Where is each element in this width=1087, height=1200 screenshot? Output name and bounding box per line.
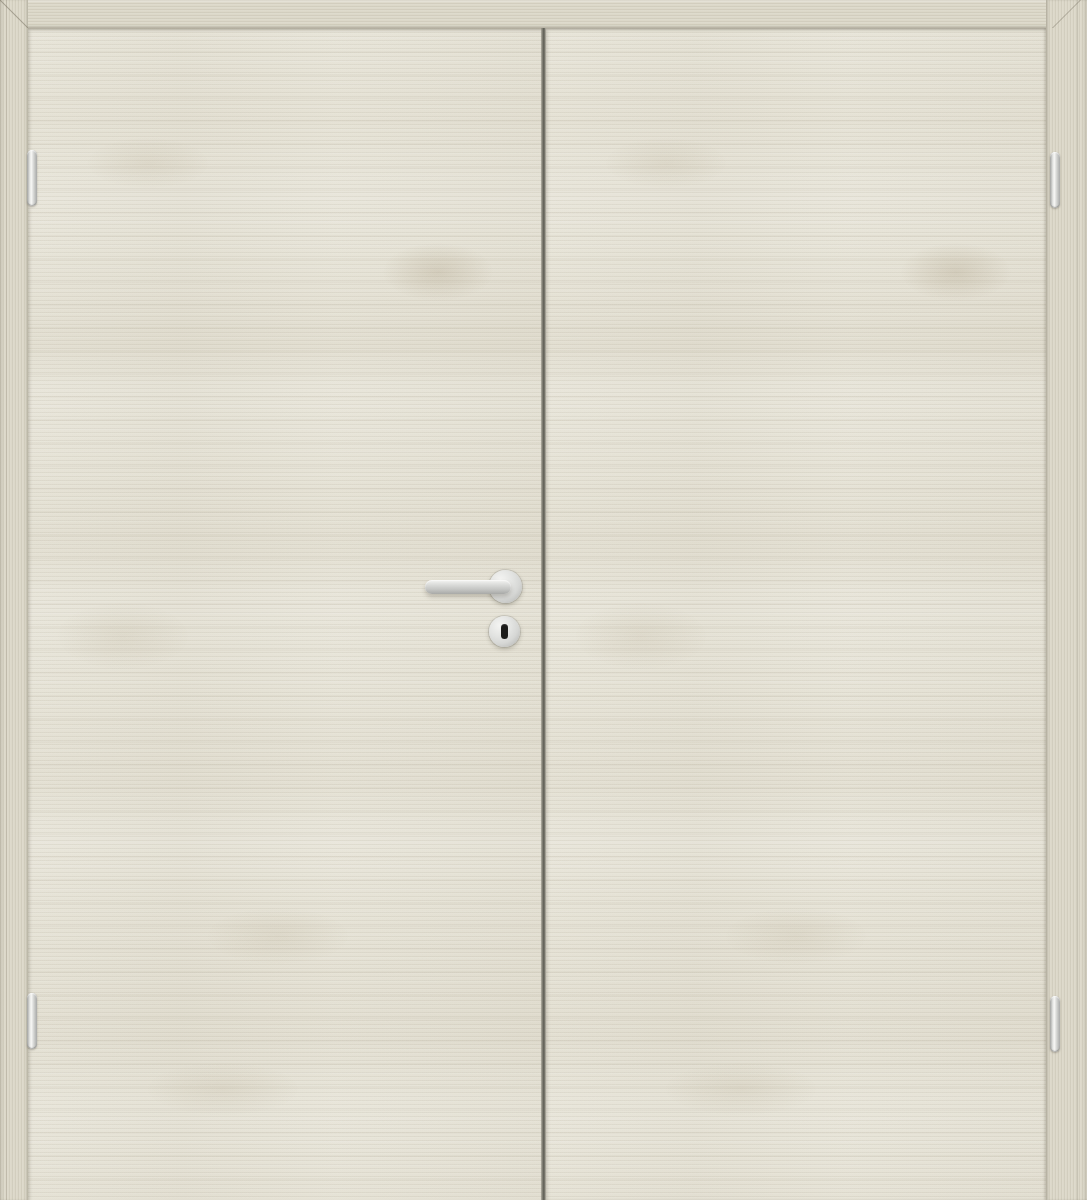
wood-knot (88, 138, 208, 188)
wood-knot (576, 603, 706, 669)
door-leaf-right (546, 28, 1046, 1200)
door-frame-top (0, 0, 1087, 28)
wood-knot (901, 243, 1011, 301)
double-door-product-photo (0, 0, 1087, 1200)
wood-knot (666, 1063, 816, 1115)
hinge-bottom-right (1050, 996, 1060, 1052)
wood-knot (208, 908, 348, 964)
keyhole-icon (501, 624, 508, 639)
door-frame-left (0, 0, 28, 1200)
wood-knot (606, 138, 726, 188)
hinge-top-right (1050, 152, 1060, 208)
wood-knot (148, 1063, 298, 1115)
door-leaf-left (28, 28, 542, 1200)
hinge-top-left (27, 150, 37, 206)
door-center-gap (541, 28, 546, 1200)
hinge-bottom-left (27, 993, 37, 1049)
wood-knot (726, 908, 866, 964)
lever-handle (425, 580, 511, 594)
wood-knot (58, 603, 188, 669)
wood-knot (383, 243, 493, 301)
